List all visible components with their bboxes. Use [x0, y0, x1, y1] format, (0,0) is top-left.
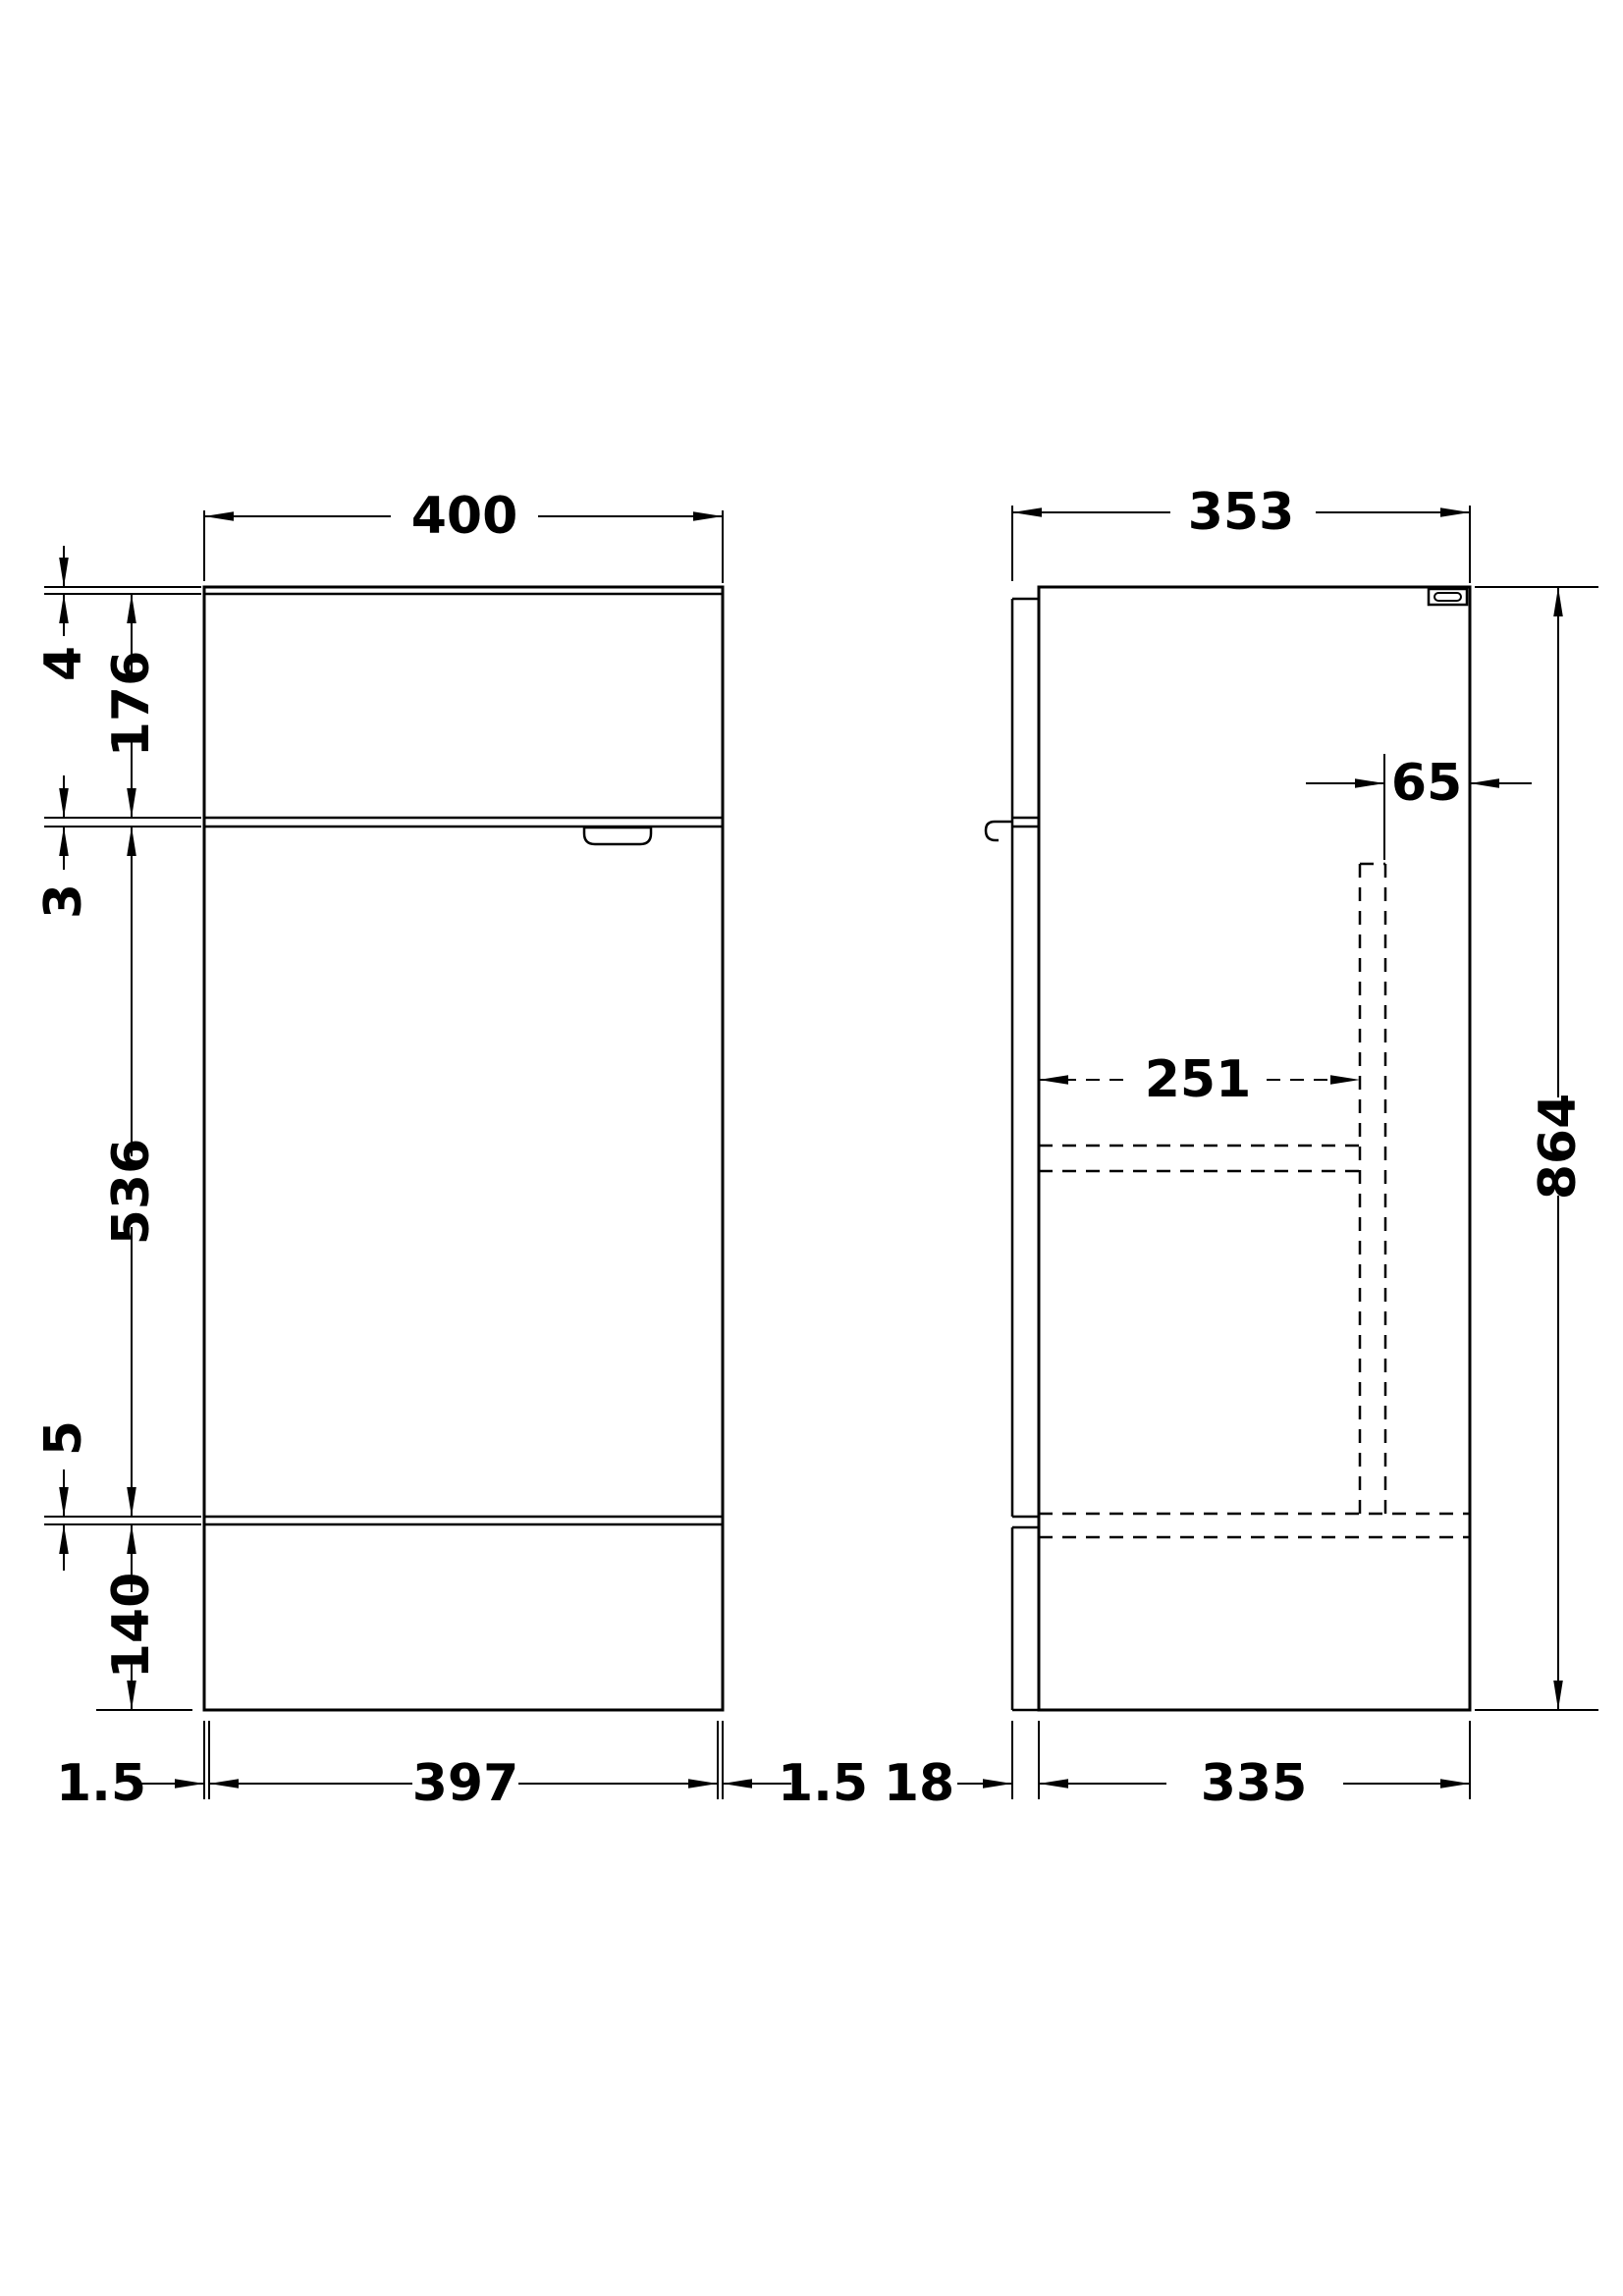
door-handle: [584, 828, 651, 844]
wall-bracket-slot: [1434, 593, 1461, 601]
side-handle-profile: [986, 822, 1012, 840]
dim-label-1-5-right: 1.5: [778, 1754, 868, 1813]
dim-label-18: 18: [884, 1754, 954, 1813]
hidden-internals: [1039, 864, 1470, 1537]
front-view: [204, 587, 723, 1710]
dim-label-536: 536: [102, 1139, 161, 1246]
dim-label-1-5-left: 1.5: [56, 1754, 146, 1813]
dim-label-5: 5: [34, 1420, 93, 1456]
dim-label-251: 251: [1145, 1050, 1252, 1109]
dim-label-65: 65: [1391, 754, 1462, 813]
dim-label-864: 864: [1529, 1094, 1588, 1201]
dim-label-3: 3: [34, 883, 93, 919]
dim-label-397: 397: [412, 1754, 519, 1813]
dimension-drawing: 400 4 176 3 536 5 140 1.5: [0, 0, 1623, 2296]
dim-label-176: 176: [102, 651, 161, 758]
dim-label-4: 4: [34, 646, 93, 681]
front-unit-outline: [204, 587, 723, 1710]
dim-label-335: 335: [1201, 1754, 1308, 1813]
technical-drawing-page: 400 4 176 3 536 5 140 1.5: [0, 0, 1623, 2296]
dim-label-140: 140: [102, 1573, 161, 1680]
dim-label-400: 400: [411, 487, 518, 546]
dim-label-353: 353: [1188, 483, 1295, 542]
